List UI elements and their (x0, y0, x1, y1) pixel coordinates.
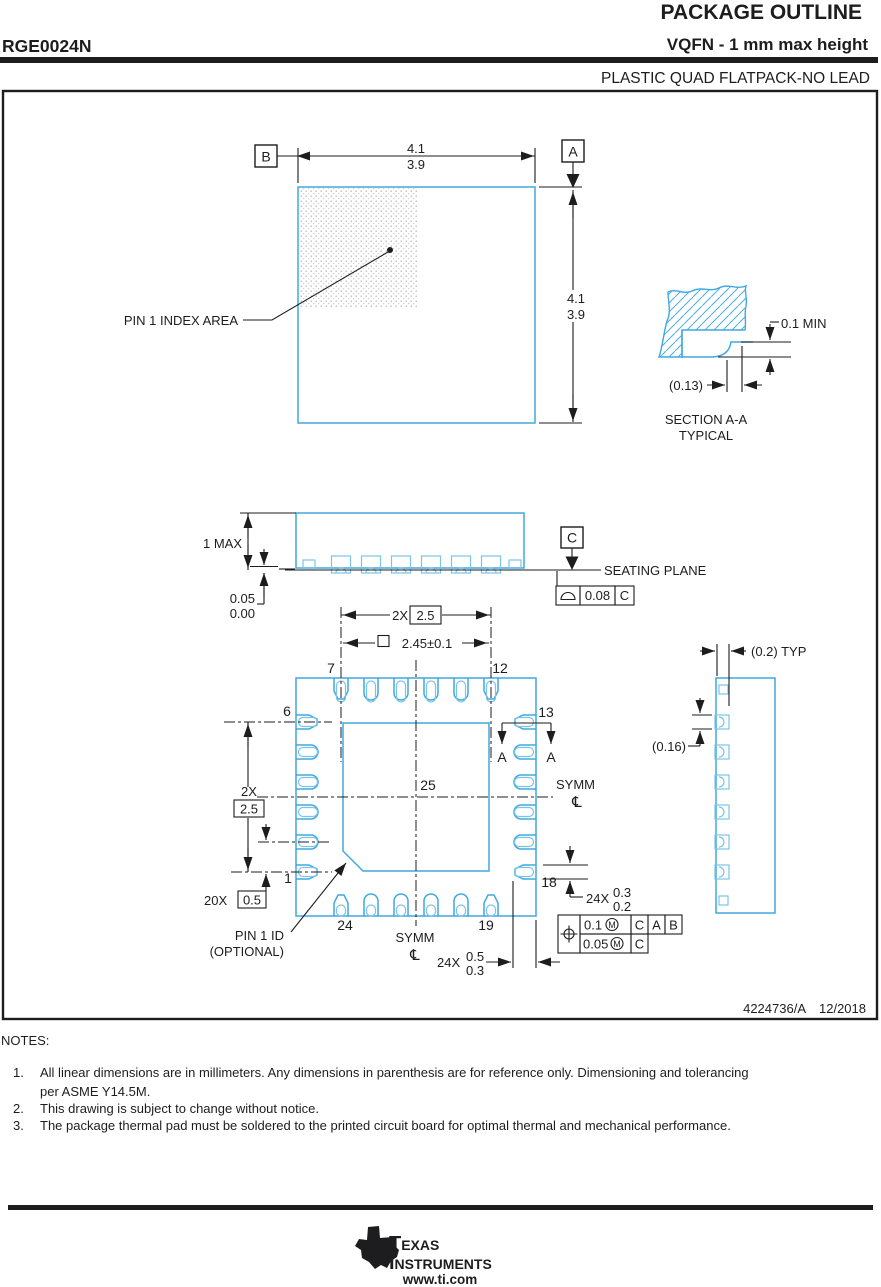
part-number: RGE0024N (2, 36, 92, 56)
dim-height-lower: 3.9 (567, 307, 585, 322)
dim-lead-len-upper: 0.5 (466, 949, 484, 964)
dim-span-left-prefix: 2X (241, 784, 257, 799)
package-outline-page: PACKAGE OUTLINE RGE0024N VQFN - 1 mm max… (0, 0, 881, 1287)
section-title: SECTION A-A (665, 412, 748, 427)
dim-span-top-value: 2.5 (416, 608, 434, 623)
dim-height-max: 1 MAX (203, 536, 242, 551)
pin-18-label: 18 (541, 874, 557, 890)
package-family: PLASTIC QUAD FLATPACK-NO LEAD (601, 70, 870, 87)
note-1-line1: All linear dimensions are in millimeters… (40, 1065, 749, 1080)
brand-line2: Instruments (389, 1252, 492, 1274)
pin1-id-line1: PIN 1 ID (235, 928, 284, 943)
note-1-num: 1. (13, 1065, 24, 1080)
profile-symbol-icon (561, 593, 575, 600)
fcf2-tol: 0.05 (583, 937, 608, 952)
fcf2-mmc-icon: M (613, 939, 621, 949)
top-view: PIN 1 INDEX AREA 4.1 3.9 B A 4.1 3.9 (124, 140, 585, 423)
fcf1-mmc-icon: M (608, 920, 616, 930)
note-2-num: 2. (13, 1101, 24, 1116)
dim-lead-len-prefix: 24X (437, 955, 460, 970)
dim-lead-w-prefix: 24X (586, 891, 609, 906)
pin-12-label: 12 (492, 660, 508, 676)
pin1-index-stipple (299, 188, 417, 307)
notes-section: NOTES: 1. All linear dimensions are in m… (1, 1033, 749, 1133)
symm-bottom-label: SYMM (396, 930, 435, 945)
section-aa-view: 0.1 MIN (0.13) SECTION A-A TYPICAL (659, 286, 827, 443)
section-subtitle: TYPICAL (679, 428, 733, 443)
datum-c-label: C (567, 530, 577, 546)
dim-standoff-upper: 0.05 (230, 591, 255, 606)
doc-date: 12/2018 (819, 1001, 866, 1016)
detail-dim-ref: (0.16) (652, 739, 686, 754)
datum-a-triangle (567, 174, 580, 188)
dim-standoff-lower: 0.00 (230, 606, 255, 621)
dim-span-left-value: 2.5 (240, 802, 258, 817)
note-2-line1: This drawing is subject to change withou… (40, 1101, 319, 1116)
pin-13-label: 13 (538, 704, 554, 720)
doc-subtitle: VQFN - 1 mm max height (667, 35, 869, 54)
symm-right-label: SYMM (556, 777, 595, 792)
footer-rule (8, 1205, 873, 1210)
dim-lead-w-upper: 0.3 (613, 885, 631, 900)
ti-logo-text: ti (369, 1242, 378, 1259)
fcf1-datum1: C (635, 918, 644, 933)
detail-dim-typ: (0.2) TYP (751, 644, 806, 659)
pad-25-label: 25 (420, 777, 436, 793)
pin-19-label: 19 (478, 917, 494, 933)
seating-plane-triangle (566, 557, 579, 571)
side-view: 1 MAX 0.05 0.00 C SEATING PLANE 0.08 C (203, 513, 707, 621)
doc-number: 4224736/A (743, 1001, 806, 1016)
square-symbol-icon (378, 636, 389, 647)
centerline-bottom-icon: ℄ (409, 946, 420, 964)
section-dim-min: 0.1 MIN (781, 316, 827, 331)
dim-width-lower: 3.9 (407, 157, 425, 172)
note-3-num: 3. (13, 1118, 24, 1133)
section-arrow-left-label: A (497, 749, 507, 765)
datum-a-label: A (568, 144, 578, 160)
fcf1-tol: 0.1 (584, 918, 602, 933)
fcf-flatness-datum: C (620, 588, 629, 603)
footer-brand: ti Texas Instruments www.ti.com (8, 1205, 873, 1287)
note-3-line1: The package thermal pad must be soldered… (40, 1118, 731, 1133)
dim-pitch-value: 0.5 (243, 893, 261, 908)
dim-width-upper: 4.1 (407, 141, 425, 156)
document-header: PACKAGE OUTLINE RGE0024N VQFN - 1 mm max… (0, 1, 878, 87)
section-arrow-right-label: A (546, 749, 556, 765)
dim-pad: 2.45±0.1 (402, 636, 453, 651)
dim-span-top-prefix: 2X (392, 608, 408, 623)
centerline-right-icon: ℄ (571, 793, 582, 811)
header-rule (0, 57, 878, 63)
fcf1-datum2: A (652, 918, 661, 933)
pin-24-label: 24 (337, 917, 353, 933)
pin1-id-line2: (OPTIONAL) (210, 944, 284, 959)
dim-lead-len-lower: 0.3 (466, 963, 484, 978)
section-dim-ref: (0.13) (669, 378, 703, 393)
fcf-flatness-tol: 0.08 (585, 588, 610, 603)
drawing-frame (3, 91, 877, 1019)
drawing-canvas: PACKAGE OUTLINE RGE0024N VQFN - 1 mm max… (0, 0, 881, 1287)
seating-plane-label: SEATING PLANE (604, 563, 707, 578)
datum-b-label: B (261, 149, 270, 165)
doc-title: PACKAGE OUTLINE (661, 1, 862, 24)
notes-label: NOTES: (1, 1033, 49, 1048)
pin-7-label: 7 (327, 660, 335, 676)
fcf2-datum1: C (635, 937, 644, 952)
footer-url: www.ti.com (402, 1272, 478, 1287)
note-1-line2: per ASME Y14.5M. (40, 1084, 150, 1099)
titleblock: 4224736/A 12/2018 (743, 1001, 866, 1016)
bottom-view: 2X 2.5 2.45±0.1 A A SYMM ℄ SYMM ℄ 2X 2.5… (204, 606, 682, 978)
fcf1-datum3: B (669, 918, 678, 933)
mold-section-hatch (659, 286, 746, 357)
pin-1-label: 1 (284, 870, 292, 886)
pin1-index-label: PIN 1 INDEX AREA (124, 313, 238, 328)
dim-pitch-prefix: 20X (204, 893, 227, 908)
dim-height-upper: 4.1 (567, 291, 585, 306)
lead-detail-view: (0.2) TYP (0.16) (652, 644, 806, 913)
dim-lead-w-lower: 0.2 (613, 899, 631, 914)
position-fcf: 0.1 M C A B 0.05 M C (558, 915, 682, 953)
pin-6-label: 6 (283, 703, 291, 719)
